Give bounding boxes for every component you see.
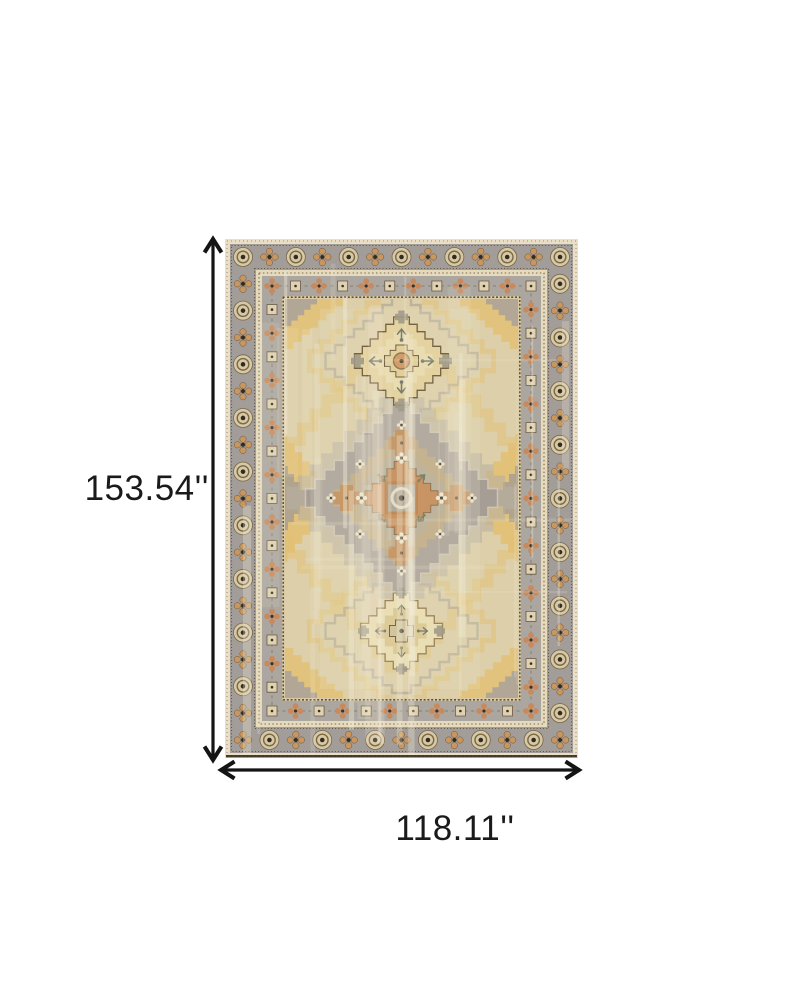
- rug-illustration: [225, 239, 578, 758]
- arrowhead-up-icon: [205, 239, 222, 253]
- height-dimension-label: 153.54'': [49, 471, 209, 506]
- width-dimension-label: 118.11'': [375, 811, 535, 846]
- width-dimension-arrow: [221, 762, 579, 779]
- arrowhead-right-icon: [566, 762, 580, 779]
- arrowhead-left-icon: [221, 762, 235, 779]
- product-dimension-figure: 153.54'' 118.11'': [0, 0, 800, 1000]
- arrowhead-down-icon: [205, 747, 222, 761]
- rug-image: [225, 239, 578, 758]
